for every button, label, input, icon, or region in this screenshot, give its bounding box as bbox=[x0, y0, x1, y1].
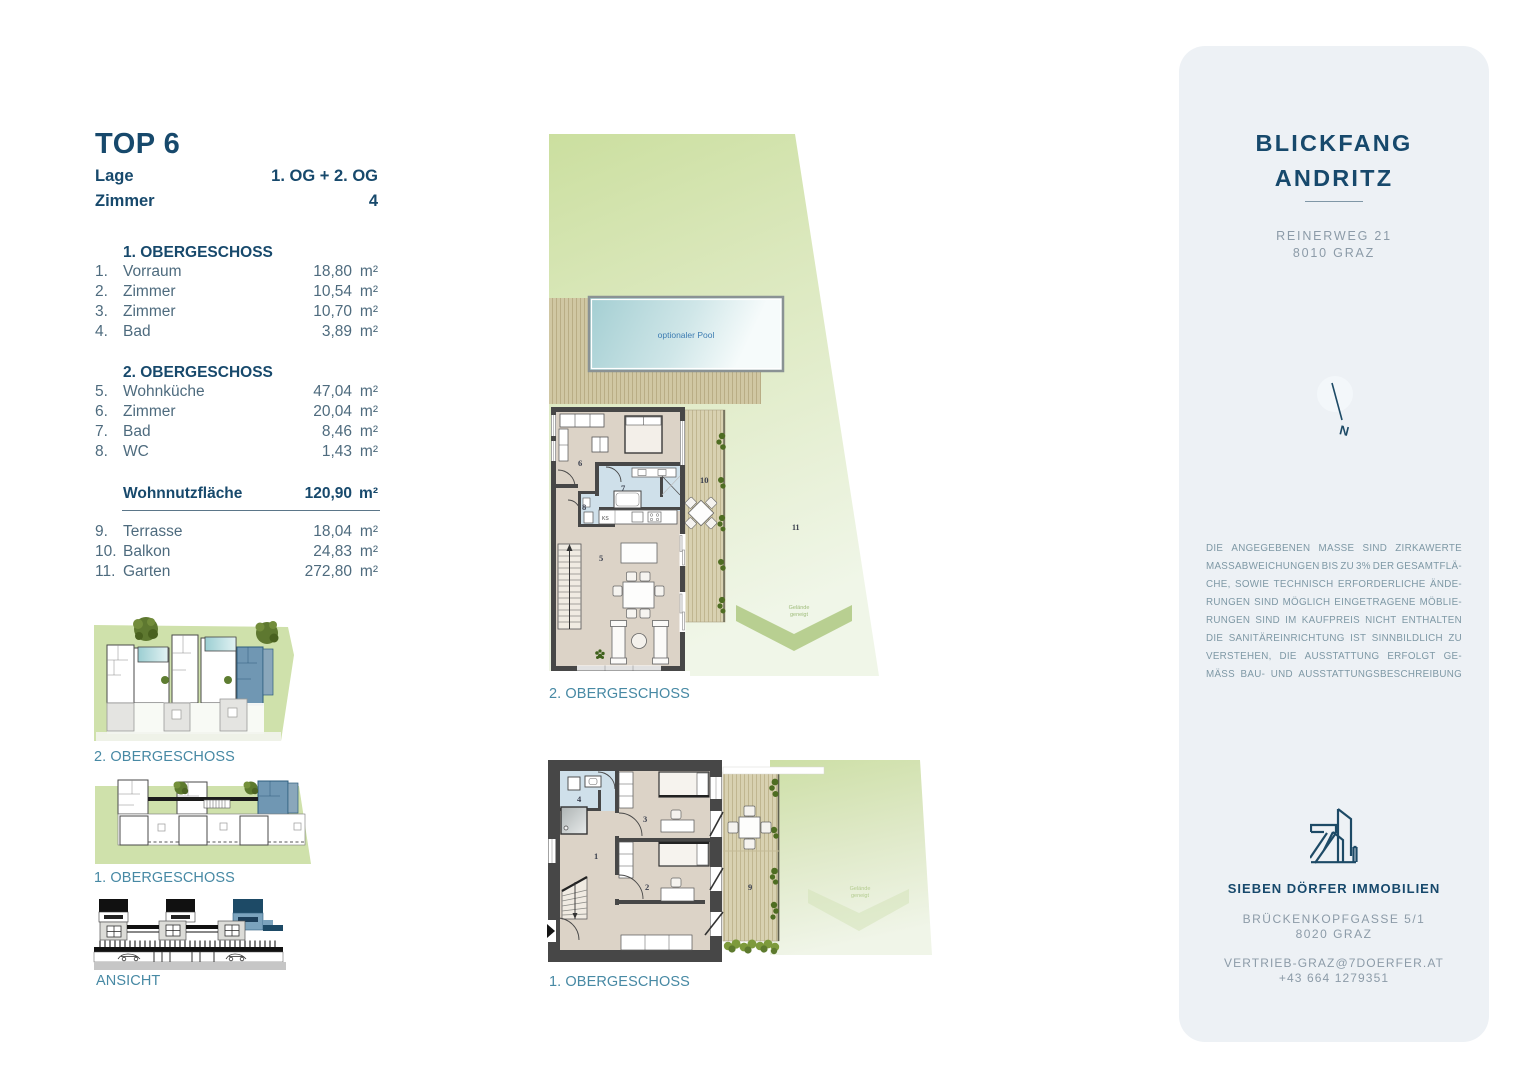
svg-text:10: 10 bbox=[700, 475, 709, 485]
svg-text:9: 9 bbox=[748, 882, 752, 892]
svg-text:KS: KS bbox=[602, 516, 609, 522]
svg-text:6: 6 bbox=[578, 458, 582, 468]
svg-text:N: N bbox=[1338, 422, 1351, 439]
svg-text:1: 1 bbox=[594, 851, 598, 861]
svg-text:geneigt: geneigt bbox=[790, 612, 809, 618]
svg-text:geneigt: geneigt bbox=[851, 893, 870, 899]
svg-text:optionaler Pool: optionaler Pool bbox=[658, 330, 715, 340]
svg-text:11: 11 bbox=[792, 523, 800, 532]
svg-text:8: 8 bbox=[582, 502, 586, 512]
svg-text:Gelände: Gelände bbox=[789, 605, 810, 611]
svg-text:Gelände: Gelände bbox=[850, 886, 871, 892]
svg-text:2: 2 bbox=[645, 882, 649, 892]
svg-text:5: 5 bbox=[599, 553, 603, 563]
svg-text:3: 3 bbox=[643, 814, 647, 824]
